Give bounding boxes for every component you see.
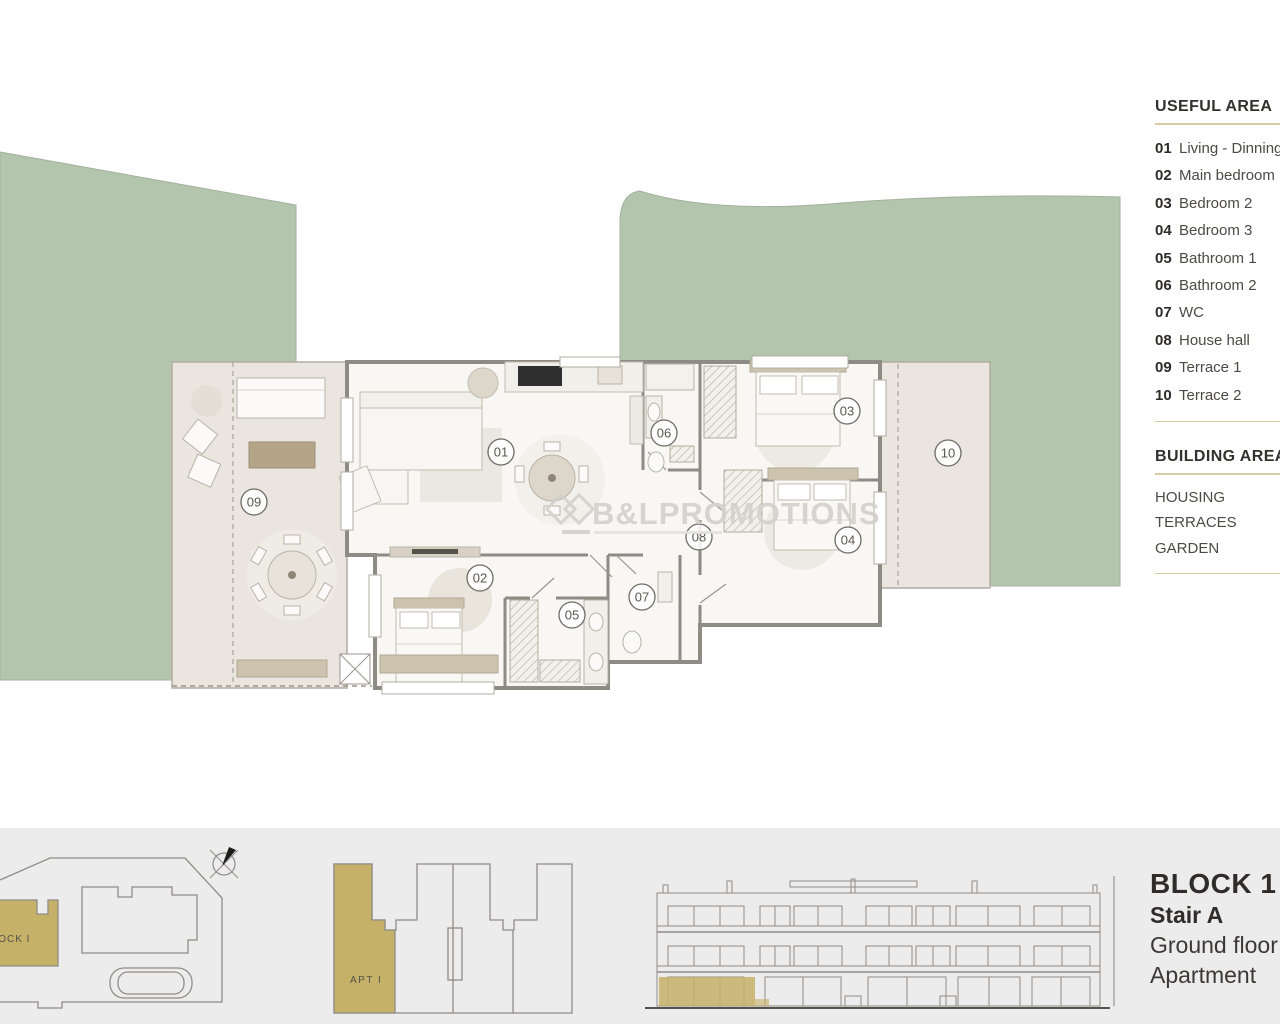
watermark-subline <box>594 531 722 534</box>
svg-text:09: 09 <box>247 495 261 510</box>
svg-text:01: 01 <box>494 445 508 460</box>
apartment-label: Apartment <box>1150 960 1278 990</box>
site-plan <box>0 858 222 1008</box>
useful-area-list: 01Living - Dinning 02Main bedroom 03Bedr… <box>1155 135 1280 409</box>
site-block-label: BLOCK I <box>0 934 30 945</box>
block1-highlight-shape <box>0 900 58 966</box>
svg-text:10: 10 <box>941 446 955 461</box>
divider <box>1155 421 1280 422</box>
building-elevation <box>645 879 1110 1008</box>
svg-text:06: 06 <box>657 426 671 441</box>
legend-panel: USEFUL AREA 01Living - Dinning 02Main be… <box>1155 98 1280 584</box>
list-item: 08House hall <box>1155 327 1280 354</box>
list-item: 10Terrace 2 <box>1155 382 1280 409</box>
watermark: B&LPROMOTIONS <box>547 495 881 534</box>
building-area-section: BUILDING AREA HOUSING TERRACES GARDEN <box>1155 448 1280 574</box>
building-area-list: HOUSING TERRACES GARDEN <box>1155 485 1280 561</box>
elevation-windows-floor2 <box>668 946 1090 966</box>
svg-text:02: 02 <box>473 571 487 586</box>
room-badge: 01 <box>488 439 514 465</box>
room-badge: 09 <box>241 489 267 515</box>
list-item: TERRACES <box>1155 510 1280 535</box>
elevation-apartment-highlight <box>659 977 755 1006</box>
elevation-windows-floor3 <box>668 906 1090 926</box>
room-badge: 07 <box>629 584 655 610</box>
floor-plan-drawing: 01 02 03 04 05 06 07 08 09 10 B&LPROMOTI… <box>0 0 1280 828</box>
stair-label: Stair A <box>1150 900 1278 930</box>
floorplan-sheet: { "legend": { "useful_area": { "title": … <box>0 0 1280 1024</box>
useful-area-title: USEFUL AREA <box>1155 98 1280 116</box>
footer-drawings: BLOCK I APT I <box>0 828 1280 1024</box>
divider <box>1155 573 1280 574</box>
room-badge: 03 <box>834 398 860 424</box>
divider <box>1155 473 1280 475</box>
list-item: 09Terrace 1 <box>1155 354 1280 381</box>
list-item: 03Bedroom 2 <box>1155 190 1280 217</box>
block-title: BLOCK 1 <box>1150 868 1278 900</box>
list-item: GARDEN <box>1155 536 1280 561</box>
list-item: 07WC <box>1155 299 1280 326</box>
apt-label: APT I <box>350 975 382 986</box>
list-item: 01Living - Dinning <box>1155 135 1280 162</box>
divider <box>1155 123 1280 125</box>
building-area-title: BUILDING AREA <box>1155 448 1280 466</box>
unit-info-block: BLOCK 1 Stair A Ground floor Apartment <box>1150 868 1278 990</box>
room-badge: 05 <box>559 602 585 628</box>
svg-text:07: 07 <box>635 590 649 605</box>
list-item: 05Bathroom 1 <box>1155 245 1280 272</box>
list-item: 02Main bedroom <box>1155 162 1280 189</box>
svg-text:03: 03 <box>840 404 854 419</box>
list-item: HOUSING <box>1155 485 1280 510</box>
terrace-2-floor <box>880 362 990 588</box>
room-badge: 06 <box>651 420 677 446</box>
room-badge: 10 <box>935 440 961 466</box>
watermark-text: B&LPROMOTIONS <box>592 496 881 531</box>
apt1-highlight-shape <box>334 864 395 1013</box>
svg-text:05: 05 <box>565 608 579 623</box>
room-badge: 02 <box>467 565 493 591</box>
list-item: 04Bedroom 3 <box>1155 217 1280 244</box>
footer-divider-line <box>1113 876 1115 1006</box>
footer-strip: BLOCK I APT I <box>0 828 1280 1024</box>
floor-key-plan <box>334 864 572 1013</box>
svg-text:04: 04 <box>841 533 855 548</box>
floor-label: Ground floor <box>1150 930 1278 960</box>
compass-icon <box>210 847 238 878</box>
list-item: 06Bathroom 2 <box>1155 272 1280 299</box>
